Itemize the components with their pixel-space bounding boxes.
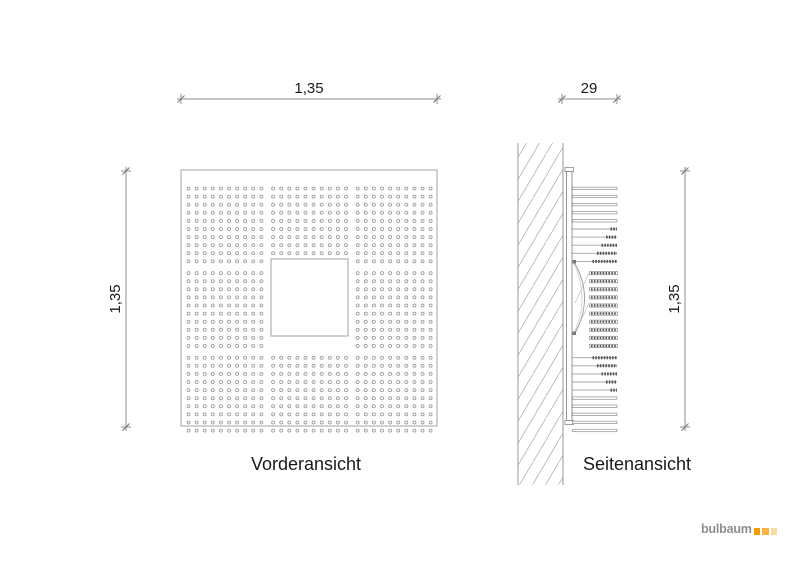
recess-marker-top xyxy=(573,260,577,264)
dim-front-width-label: 1,35 xyxy=(294,80,323,97)
dim-side-height-label: 1,35 xyxy=(666,284,683,313)
logo-square-3 xyxy=(771,528,778,535)
logo-square-2 xyxy=(762,528,769,535)
dim-side-depth-label: 29 xyxy=(581,80,598,97)
dim-front-height-label: 1,35 xyxy=(107,284,124,313)
front-view-drawing xyxy=(181,170,437,432)
side-slat-rows xyxy=(573,187,618,431)
wall-hatch xyxy=(518,143,563,485)
side-view-drawing xyxy=(518,143,618,485)
side-view-label: Seitenansicht xyxy=(583,454,691,474)
drawing-svg: 1,35 29 1,35 1,35 Vorderansicht Seitenan… xyxy=(0,0,800,560)
recess-marker-bottom xyxy=(573,332,577,336)
front-view-label: Vorderansicht xyxy=(251,454,361,474)
brand-logo: bulbaum xyxy=(701,523,777,536)
mounting-plate xyxy=(567,172,573,421)
plate-top-cap xyxy=(565,168,574,172)
recess-curve xyxy=(574,262,585,335)
front-center-cutout xyxy=(271,259,348,336)
brand-logo-text: bulbaum xyxy=(701,523,752,536)
recess-curve-inner xyxy=(574,264,582,333)
technical-drawing: 1,35 29 1,35 1,35 Vorderansicht Seitenan… xyxy=(0,0,800,560)
logo-square-1 xyxy=(754,528,761,535)
